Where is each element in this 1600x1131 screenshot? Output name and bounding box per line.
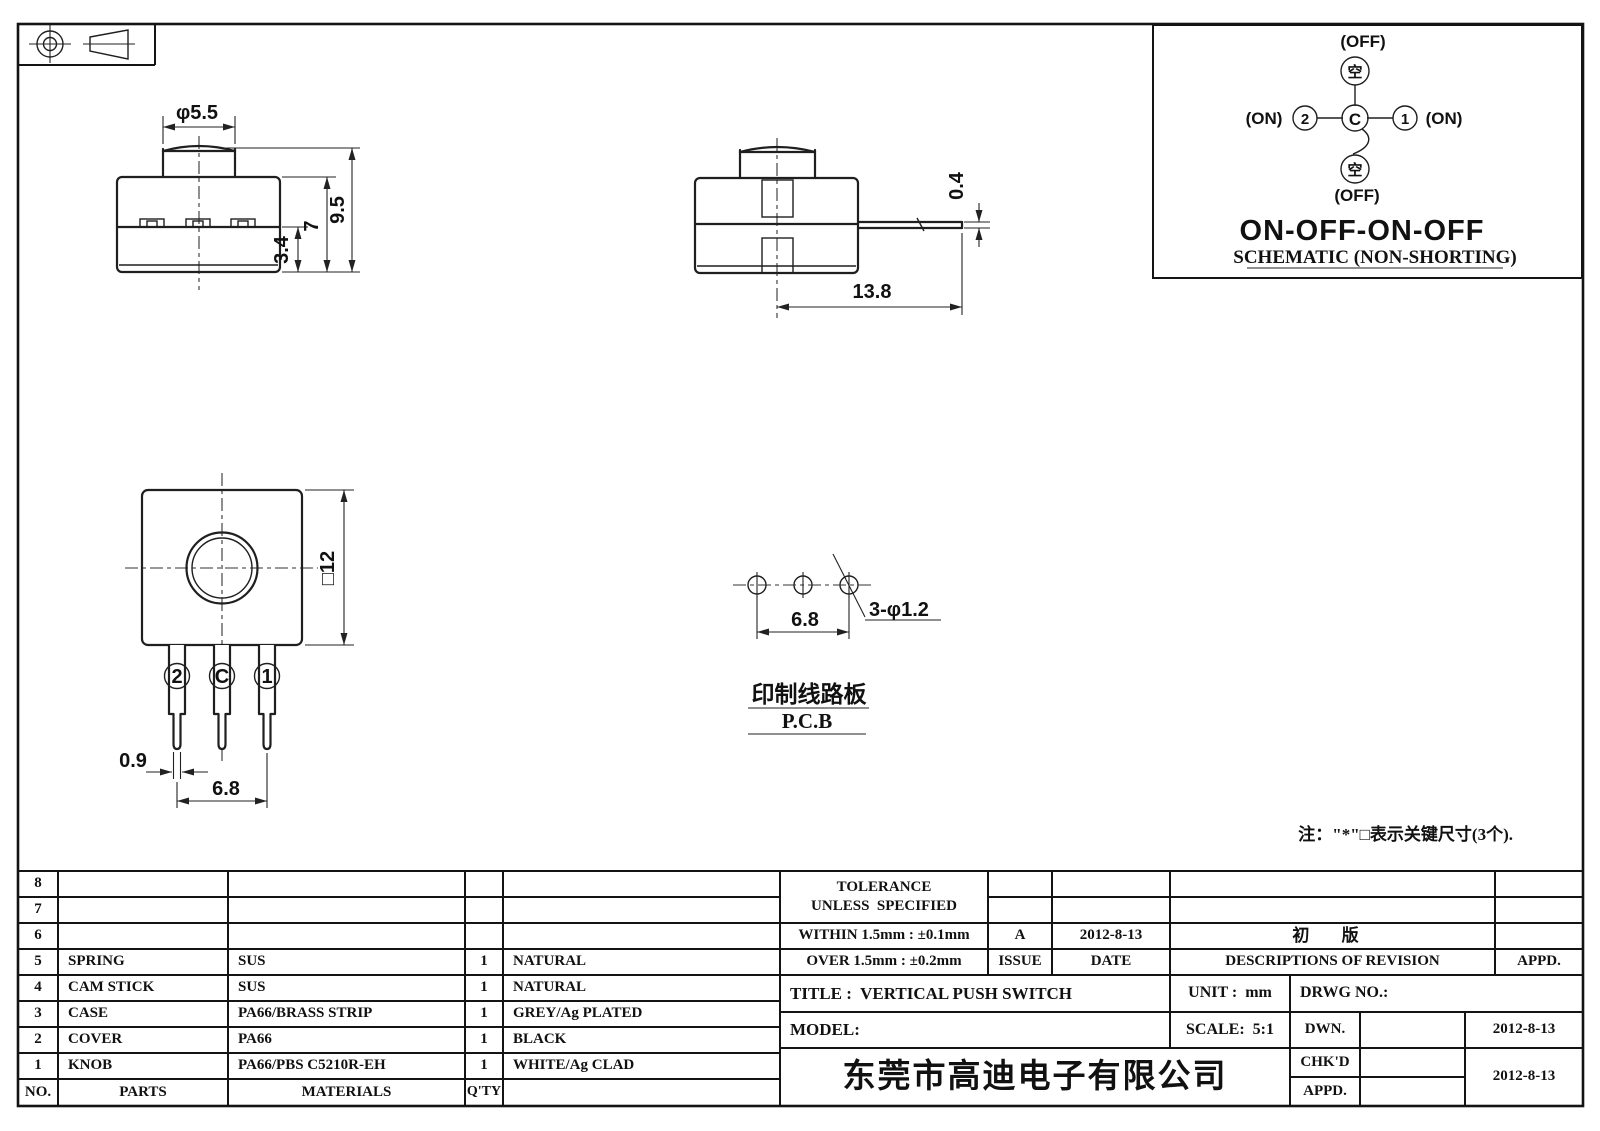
dim-terminal-length: 13.8 [853,281,892,303]
parts-row-qty: 1 [465,949,503,975]
switch-arm [1353,129,1369,154]
tolerance-line1: TOLERANCE [837,880,932,896]
parts-row-no: 4 [18,975,58,1001]
terminal-top: 空 [1347,63,1362,81]
appd-label: APPD. [1495,949,1583,975]
parts-row-material: PA66/BRASS STRIP [228,1001,465,1027]
company-name: 东莞市高迪电子有限公司 [780,1048,1290,1106]
unit-label: UNIT : mm [1170,975,1290,1012]
pcb-caption-cn: 印制线路板 [752,681,868,707]
parts-row-color: BLACK [503,1027,780,1053]
parts-row-no: 6 [18,923,58,949]
dim-base-height: 3.4 [271,235,293,264]
parts-row-part: CASE [58,1001,228,1027]
dim-hole-pitch: 6.8 [791,609,819,631]
parts-row-material: SUS [228,975,465,1001]
dim-terminal-thickness: 0.4 [946,171,968,200]
side-view: 0.4 13.8 [695,138,990,318]
chkd-date: 2012-8-13 [1465,1048,1583,1106]
state-right: (ON) [1426,109,1463,128]
key-dimension-note: 注："*"□表示关键尺寸(3个). [1235,818,1513,846]
parts-row-material: PA66/PBS C5210R-EH [228,1053,465,1079]
parts-row-part: SPRING [58,949,228,975]
parts-row-color: NATURAL [503,975,780,1001]
parts-row-part: KNOB [58,1053,228,1079]
parts-row-no: 3 [18,1001,58,1027]
parts-row-no: 7 [18,897,58,923]
parts-row-material: PA66 [228,1027,465,1053]
model-label: MODEL: [780,1012,1170,1048]
parts-row-color: WHITE/Ag CLAD [503,1053,780,1079]
pcb-view: 3-φ1.2 6.8 印制线路板 P.C.B [733,554,941,734]
drawing-title: TITLE : VERTICAL PUSH SWITCH [780,975,1170,1012]
parts-row-qty: 1 [465,975,503,1001]
tolerance-header: TOLERANCE UNLESS SPECIFIED [780,871,988,923]
scale-label: SCALE: 5:1 [1170,1012,1290,1048]
parts-row-part: COVER [58,1027,228,1053]
parts-row-color: NATURAL [503,949,780,975]
dim-pin-width: 0.9 [119,750,147,772]
tolerance-over: OVER 1.5mm : ±0.2mm [780,949,988,975]
chkd-label: CHK'D [1290,1048,1360,1077]
drwg-no-label: DRWG NO.: [1290,975,1583,1012]
terminal-bottom: 空 [1347,161,1362,179]
parts-row-no: 8 [18,871,58,897]
appd2-label: APPD. [1290,1077,1360,1106]
dim-pin-pitch: 6.8 [212,778,240,800]
bottom-view: 2 C 1 □12 0.9 6.8 [119,473,354,808]
switch-function: ON-OFF-ON-OFF [1240,215,1485,247]
dim-knob-diameter: φ5.5 [176,102,218,124]
state-left: (ON) [1246,109,1283,128]
issue-label: ISSUE [988,949,1052,975]
drawing-sheet: φ5.5 3.4 7 9.5 [0,0,1600,1131]
pin-label-2: 2 [171,666,182,688]
issue-value: A [988,923,1052,949]
parts-row-part: CAM STICK [58,975,228,1001]
dim-body-height: 7 [301,220,323,231]
parts-header-qty: Q'TY [465,1079,503,1106]
schematic-caption: SCHEMATIC (NON-SHORTING) [1233,247,1516,268]
front-view: φ5.5 3.4 7 9.5 [117,102,360,290]
terminal-left: 2 [1301,111,1309,128]
dwn-date: 2012-8-13 [1465,1012,1583,1048]
terminal-pips [140,219,255,227]
parts-header-no: NO. [18,1079,58,1106]
parts-row-no: 5 [18,949,58,975]
pins [169,645,275,749]
terminal-right: 1 [1401,111,1409,128]
state-top: (OFF) [1340,32,1385,51]
parts-row-qty: 1 [465,1001,503,1027]
dim-hole-spec: 3-φ1.2 [869,599,929,621]
dim-total-height: 9.5 [327,196,349,224]
parts-row-color: GREY/Ag PLATED [503,1001,780,1027]
tolerance-line2: UNLESS SPECIFIED [811,899,957,915]
parts-row-no: 2 [18,1027,58,1053]
revision-label: DESCRIPTIONS OF REVISION [1170,949,1495,975]
schematic: 空 2 C 1 空 (OFF) (ON) (ON) (OFF) ON-OFF-O… [1153,25,1582,278]
tolerance-within: WITHIN 1.5mm : ±0.1mm [780,923,988,949]
pin-label-1: 1 [261,666,272,688]
state-bottom: (OFF) [1334,186,1379,205]
revision-description: 初 版 [1170,923,1495,949]
terminal-side [858,218,962,231]
parts-row-qty: 1 [465,1027,503,1053]
pcb-caption-en: P.C.B [782,709,833,733]
dwn-label: DWN. [1290,1012,1360,1048]
parts-row-no: 1 [18,1053,58,1079]
date-label: DATE [1052,949,1170,975]
revision-date: 2012-8-13 [1052,923,1170,949]
parts-row-material: SUS [228,949,465,975]
pin-labels: 2 C 1 [165,664,280,689]
pin-label-c: C [215,666,229,688]
dim-square-size: □12 [317,551,339,585]
terminal-common: C [1349,110,1361,129]
parts-header-parts: PARTS [58,1079,228,1106]
parts-header-materials: MATERIALS [228,1079,465,1106]
parts-row-qty: 1 [465,1053,503,1079]
first-angle-projection-icon [18,24,155,65]
